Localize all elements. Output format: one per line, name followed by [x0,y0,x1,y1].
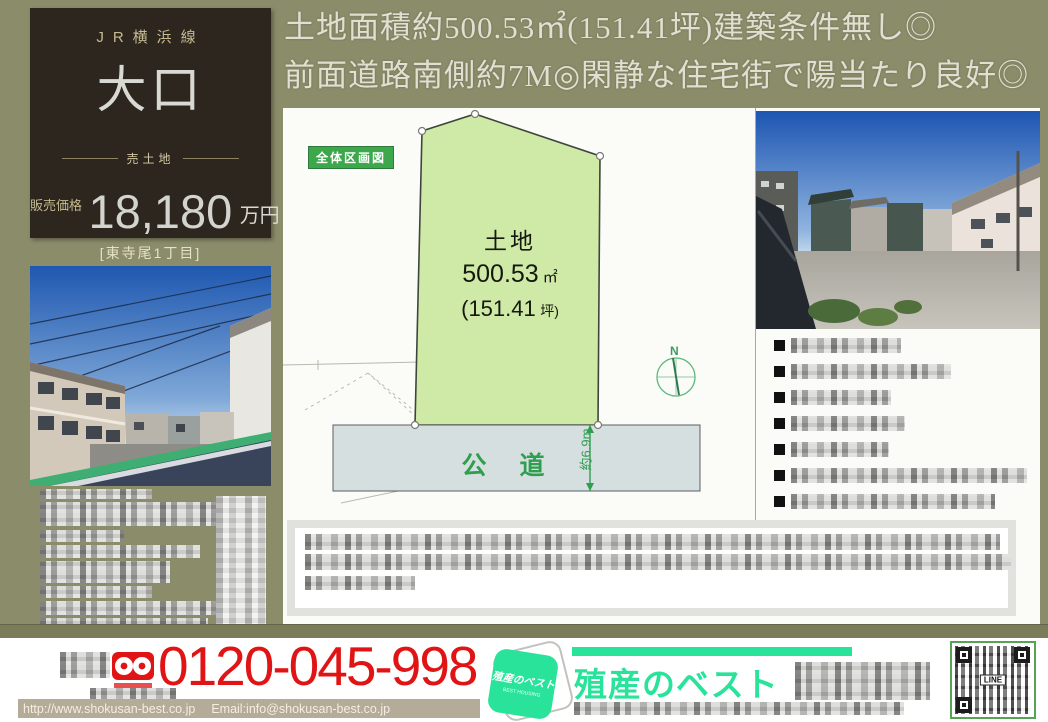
flyer-canvas: 土地面積約500.53㎡(151.41坪)建築条件無し◎ 前面道路南側約7M◎閑… [0,0,1048,722]
land-area-tsubo: (151.41 坪) [420,296,600,322]
header-line-2: 前面道路南側約7M◎閑静な住宅街で陽当たり良好◎ [284,52,1029,100]
public-road-label: 公 道 [430,446,580,482]
area-sqm-value: 500.53 [462,260,538,288]
qr-line-label: LINE [980,675,1006,686]
brand-accent-bar [572,647,852,656]
phone-number[interactable]: 0120-045-998 [158,634,477,698]
line-qr-code[interactable]: LINE [950,641,1036,719]
area-tsubo-unit: 坪) [540,303,559,319]
station-name: 大口 [30,50,271,122]
rule-left [62,158,118,159]
redacted-spec-text [791,338,901,353]
brand-name: 殖産のベスト [574,658,779,706]
redacted-remarks-line [305,534,1000,550]
location-label: [東寺尾1丁目] [30,243,271,263]
brand-logo: 殖産のベスト BEST HOUSING [488,644,578,722]
redacted-spec-text [791,494,995,509]
email-address[interactable]: Email:info@shokusan-best.co.jp [211,702,390,716]
compass-icon [657,358,695,396]
land-label: 土地 [420,222,600,256]
qr-finder-icon [1014,647,1030,663]
redacted-spec-text [791,442,889,457]
freedial-phone-icon [110,650,156,690]
price-box: JR横浜線 大口 売土地 販売価格 18,180 万円 [30,8,271,238]
spec-item [774,338,1027,353]
brand-logo-front-square: 殖産のベスト BEST HOUSING [486,647,559,720]
area-sqm-unit: ㎡ [543,269,558,286]
qr-finder-icon [956,697,972,713]
road-width-label: 約6.9m [576,418,591,482]
spec-item [774,364,1027,379]
redacted-remarks-line [305,576,415,590]
redacted-remarks-line [305,554,1011,570]
contact-bar: http://www.shokusan-best.co.jp Email:inf… [18,699,480,718]
redacted-spec-text [791,416,905,431]
remarks-box [287,520,1016,616]
bullet-icon [774,366,785,377]
spec-item [774,468,1027,483]
bullet-icon [774,418,785,429]
street-photo [30,266,271,486]
spec-item [774,416,1027,431]
bullet-icon [774,470,785,481]
land-area-sqm: 500.53㎡ [420,260,600,289]
sale-type-row: 売土地 [30,150,271,167]
redacted-spec-text [791,390,891,405]
bullet-icon [774,392,785,403]
rule-right [183,158,239,159]
redacted-brand-suffix [795,662,930,700]
lot-photo [756,111,1040,329]
redacted-spec-text [791,364,951,379]
diagram-badge: 全体区画図 [308,146,394,169]
compass-north-label: N [670,344,679,358]
qr-finder-icon [956,647,972,663]
price-label: 販売価格 [30,198,82,213]
website-url[interactable]: http://www.shokusan-best.co.jp [23,702,195,716]
redacted-footer-label [60,652,110,678]
price-value: 18,180 [88,185,232,238]
area-tsubo-value: (151.41 [461,296,536,321]
spec-list [774,338,1027,520]
bullet-icon [774,340,785,351]
footer: 0120-045-998 http://www.shokusan-best.co… [0,638,1048,722]
redacted-address-line [574,702,904,715]
spec-item [774,494,1027,509]
spec-item [774,442,1027,457]
price-unit: 万円 [240,205,280,227]
spec-item [774,390,1027,405]
bullet-icon [774,496,785,507]
header-line-1: 土地面積約500.53㎡(151.41坪)建築条件無し◎ [284,4,1029,52]
sale-type-label: 売土地 [126,150,174,167]
redacted-spec-text [791,468,1027,483]
price-row: 販売価格 18,180 万円 [30,184,271,239]
rail-line-label: JR横浜線 [30,26,271,47]
bullet-icon [774,444,785,455]
header-banner: 土地面積約500.53㎡(151.41坪)建築条件無し◎ 前面道路南側約7M◎閑… [284,4,1029,100]
